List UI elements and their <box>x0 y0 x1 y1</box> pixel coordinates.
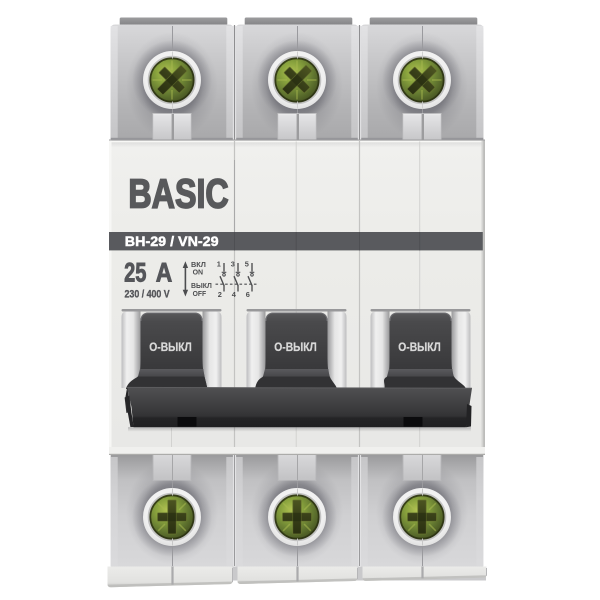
svg-text:230 / 400 V: 230 / 400 V <box>125 288 171 300</box>
svg-text:3: 3 <box>231 260 235 269</box>
svg-text:OFF: OFF <box>193 289 207 298</box>
svg-text:ON: ON <box>193 268 204 277</box>
svg-text:О-ВЫКЛ: О-ВЫКЛ <box>274 340 317 354</box>
svg-text:О-ВЫКЛ: О-ВЫКЛ <box>149 340 192 354</box>
svg-text:2: 2 <box>218 290 222 299</box>
svg-text:1: 1 <box>217 260 221 269</box>
svg-text:BASIC: BASIC <box>128 170 228 216</box>
svg-text:6: 6 <box>246 290 250 299</box>
svg-text:25: 25 <box>124 257 146 287</box>
svg-text:О-ВЫКЛ: О-ВЫКЛ <box>398 340 441 354</box>
svg-text:А: А <box>156 257 173 287</box>
svg-text:5: 5 <box>245 260 249 269</box>
svg-text:ВН-29 / VN-29: ВН-29 / VN-29 <box>125 234 219 250</box>
